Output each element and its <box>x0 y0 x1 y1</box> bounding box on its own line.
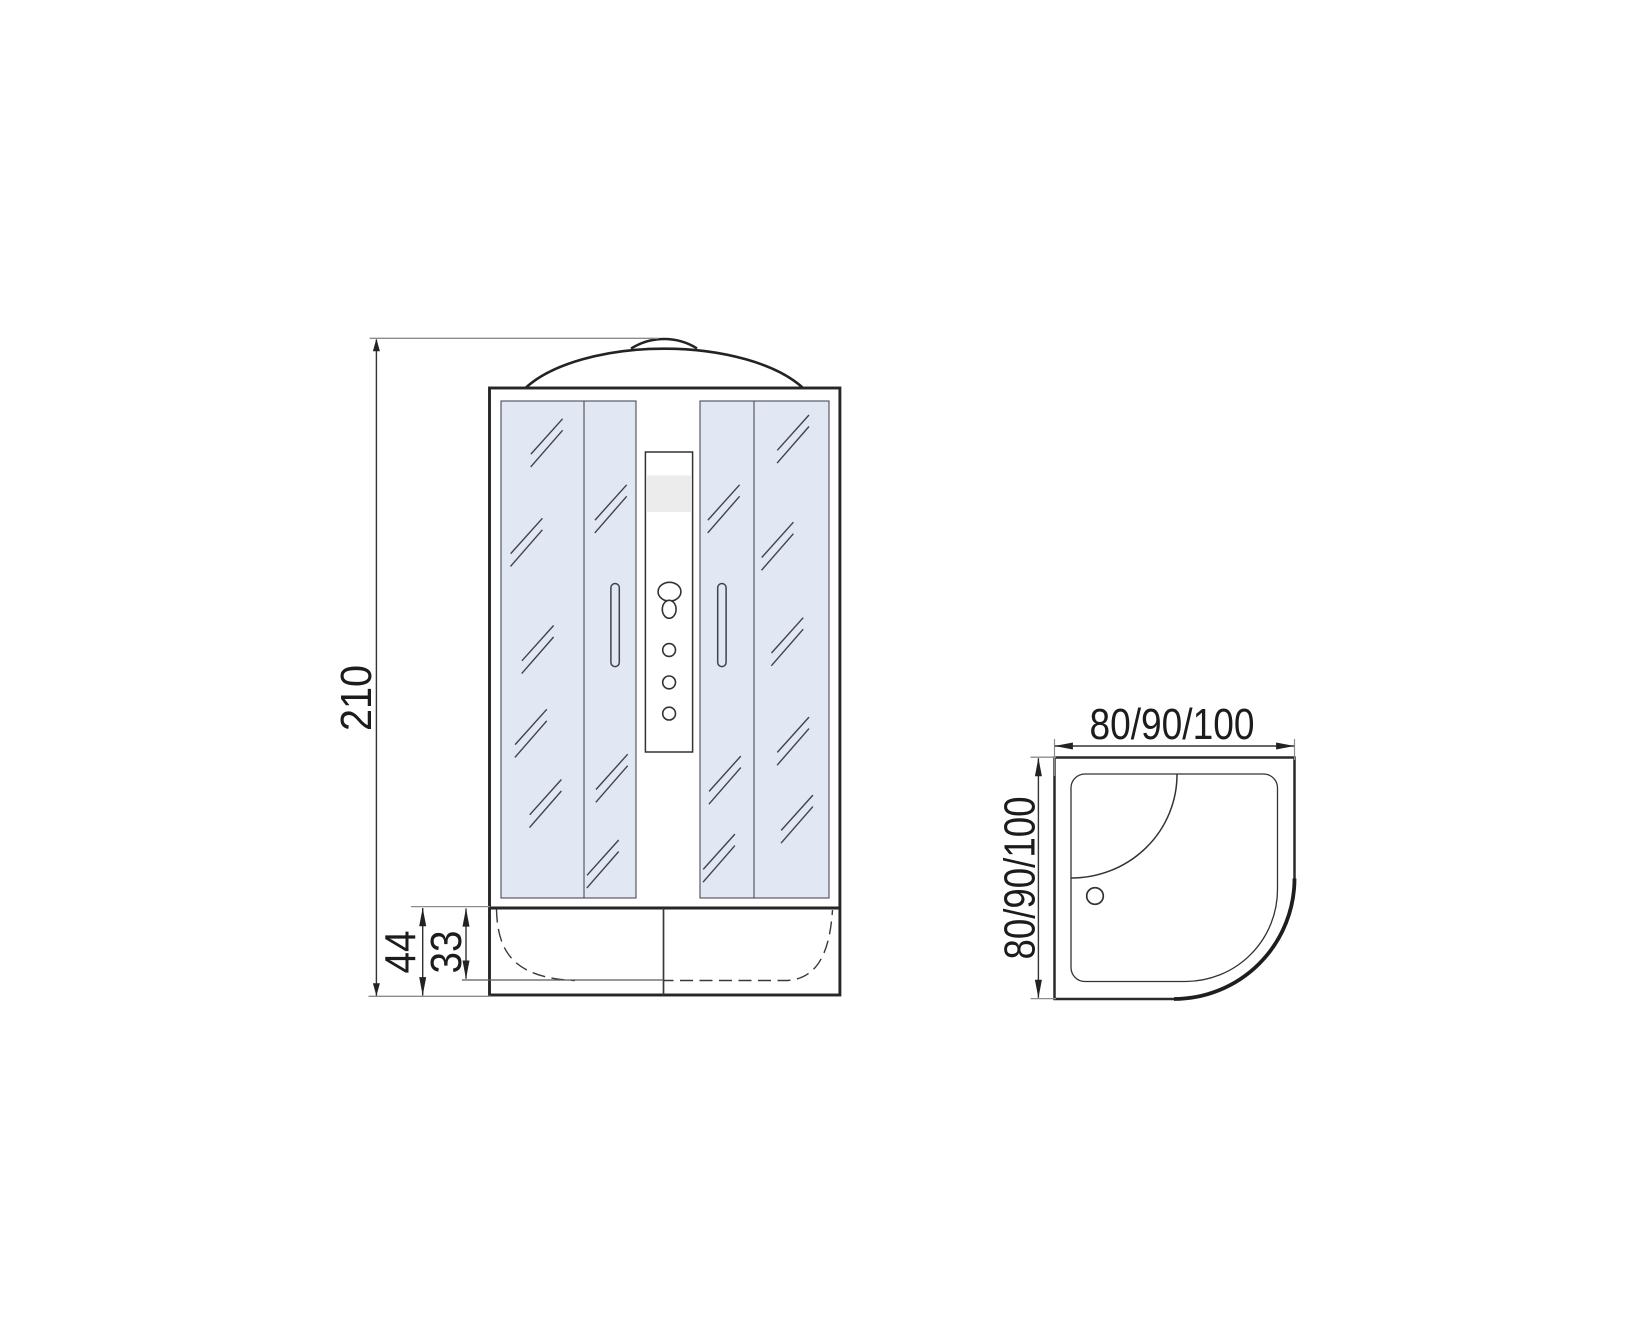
svg-text:44: 44 <box>376 931 425 974</box>
svg-text:80/90/100: 80/90/100 <box>1090 700 1255 749</box>
svg-text:210: 210 <box>332 665 381 731</box>
svg-text:33: 33 <box>422 931 471 974</box>
svg-text:80/90/100: 80/90/100 <box>995 797 1044 960</box>
